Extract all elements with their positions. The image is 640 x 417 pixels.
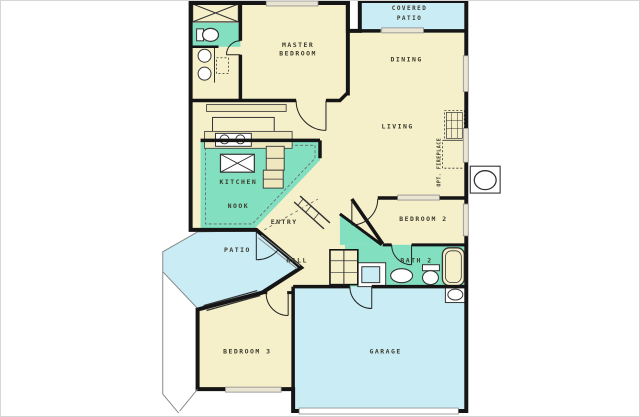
floorplan-svg: COVEREDPATIOMASTERBEDROOMDININGLIVINGKIT… [1,1,639,416]
label-opt-fireplace: OPT. FIREPLACE [436,138,442,187]
window-master-top [266,1,318,6]
window-bedroom3-bottom [225,387,281,392]
master-sink-2 [198,67,211,80]
label-garage: GARAGE [370,347,402,355]
label-patio: PATIO [224,246,251,254]
label-nook: NOOK [228,202,250,210]
label-master-bedroom-1: MASTER [282,41,314,49]
laundry-appliance [362,267,380,283]
window-dining-right [463,56,468,92]
label-covered-patio-1: COVERED [392,5,428,12]
label-entry: ENTRY [271,218,298,226]
bath2-tub-inner [445,251,461,283]
label-bedroom-3: BEDROOM 3 [223,347,271,355]
bath2-toilet-tank [423,265,440,271]
lot-line-bedroom3 [180,389,198,411]
ac-unit [474,171,496,190]
window-bedroom2-top [398,195,440,200]
bath2-toilet-bowl [423,271,439,285]
label-living: LIVING [381,122,413,130]
master-toilet-bowl [203,28,219,41]
label-covered-patio-2: PATIO [397,15,422,22]
hall-dresser [213,117,275,133]
window-bedroom2-right [463,204,468,236]
bath2-sink [391,269,413,283]
master-sink-1 [198,49,211,62]
label-bath-2: BATH 2 [400,257,432,265]
label-kitchen: KITCHEN [220,178,258,186]
hall-wardrobe-strip [207,105,287,112]
label-master-bedroom-2: BEDROOM [279,50,317,58]
garage-door [299,408,458,414]
label-dining: DINING [390,56,422,64]
floorplan-image: COVEREDPATIOMASTERBEDROOMDININGLIVINGKIT… [0,0,640,417]
slider-covered-patio [382,28,424,33]
window-living-right [463,128,468,162]
label-hall: HALL [286,257,308,265]
water-heater [448,289,463,300]
label-bedroom-2: BEDROOM 2 [399,215,447,223]
lot-line-left [163,272,179,413]
